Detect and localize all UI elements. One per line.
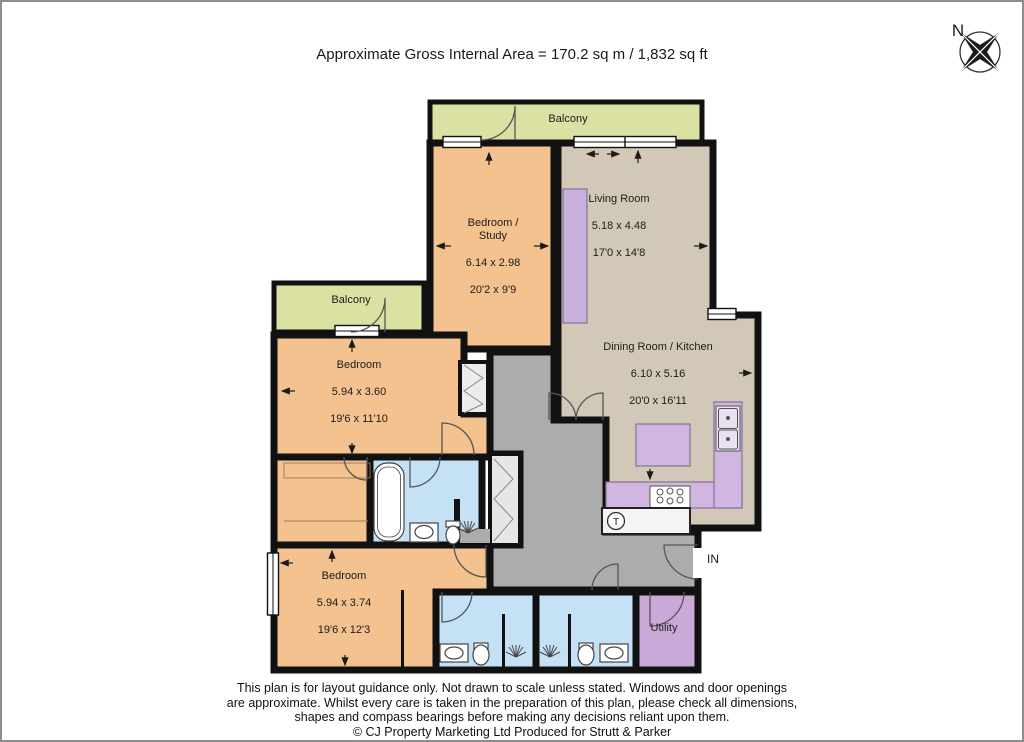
toilet-icon xyxy=(578,643,594,665)
window-dining-step xyxy=(708,309,736,320)
room-label-bedroom-mid: Bedroom 5.94 x 3.60 19'6 x 11'10 xyxy=(330,345,388,440)
room-label-balcony-top: Balcony xyxy=(548,99,587,140)
sink-icon xyxy=(600,644,628,662)
kitchen-sink-unit xyxy=(716,406,740,451)
floorplan-page: Approximate Gross Internal Area = 170.2 … xyxy=(0,0,1024,742)
room-label-bedroom-bottom: Bedroom 5.94 x 3.74 19'6 x 12'3 xyxy=(317,556,371,651)
toilet-icon xyxy=(446,521,460,544)
entrance-label: IN xyxy=(707,552,719,566)
room-label-balcony-left: Balcony xyxy=(331,280,370,321)
kitchen-island xyxy=(636,424,690,466)
living-room-unit xyxy=(563,189,587,323)
room-label-dining-kitchen: Dining Room / Kitchen 6.10 x 5.16 20'0 x… xyxy=(603,327,712,422)
room-label-bedroom-study: Bedroom / Study 6.14 x 2.98 20'2 x 9'9 xyxy=(466,203,520,311)
room-label-living-room: Living Room 5.18 x 4.48 17'0 x 14'8 xyxy=(588,179,649,274)
hob xyxy=(650,486,690,508)
floorplan-drawing: T xyxy=(2,2,1024,742)
window-bedroom-bottom-left xyxy=(268,553,279,615)
room-label-utility: Utility xyxy=(651,608,678,649)
window-living-top xyxy=(574,137,676,148)
sink-icon xyxy=(440,644,468,662)
compass-north-label: N xyxy=(952,21,964,40)
hallway-patch xyxy=(456,529,490,543)
compass-rose: N xyxy=(942,14,1018,90)
sink-icon xyxy=(410,523,438,542)
tank-cupboard: T xyxy=(602,508,690,534)
closet-top xyxy=(460,362,488,414)
footer: This plan is for layout guidance only. N… xyxy=(2,681,1022,739)
footer-disclaimer: This plan is for layout guidance only. N… xyxy=(2,681,1022,725)
entrance-opening xyxy=(693,548,704,578)
toilet-icon xyxy=(473,643,489,665)
bathtub-icon xyxy=(374,463,404,541)
room-dressing xyxy=(274,457,370,545)
window-study-balcony xyxy=(443,137,481,148)
footer-copyright: © CJ Property Marketing Ltd Produced for… xyxy=(2,725,1022,740)
tank-label: T xyxy=(613,517,619,528)
